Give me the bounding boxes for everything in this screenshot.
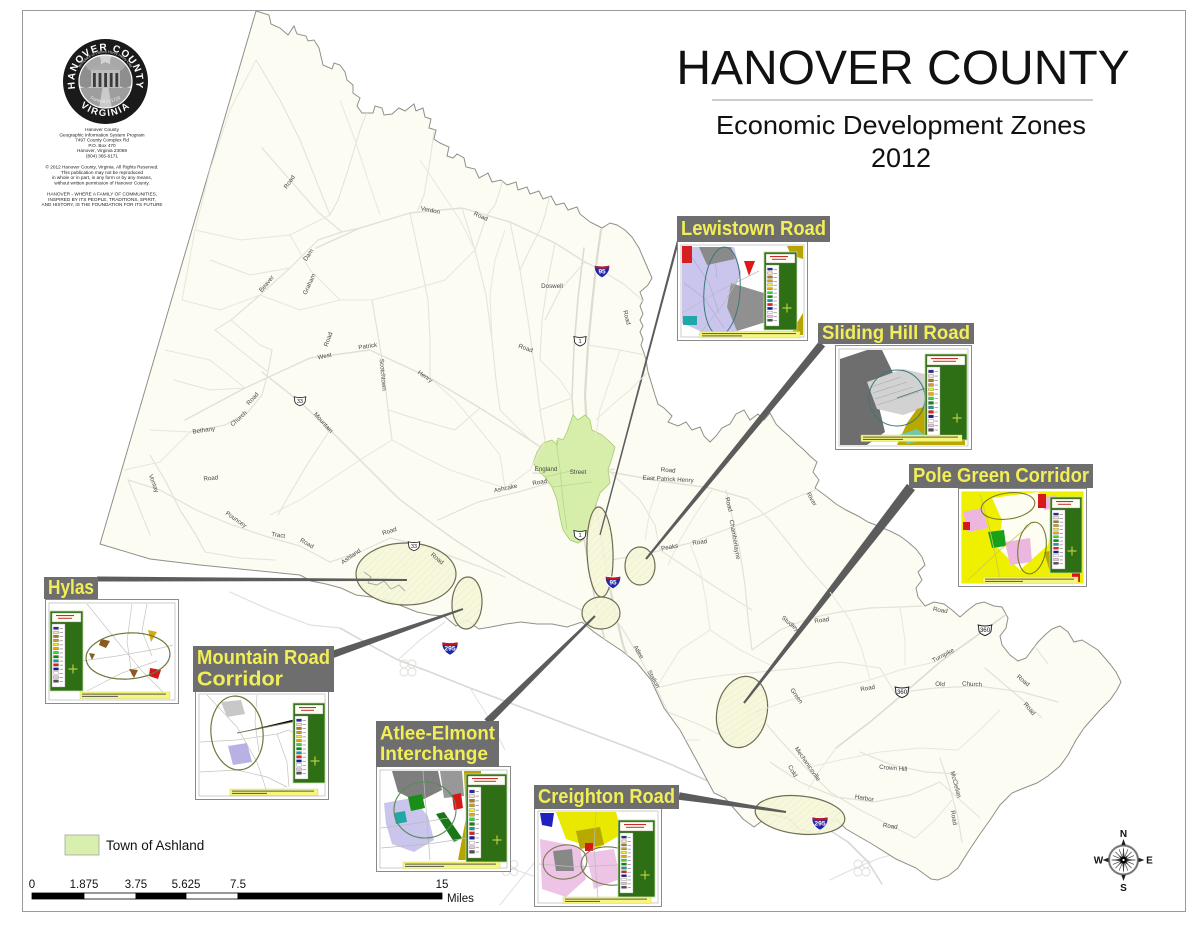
svg-text:Mountain Road: Mountain Road (197, 647, 330, 669)
svg-text:This publication may not be re: This publication may not be reproduced (61, 170, 143, 175)
svg-text:England: England (535, 466, 558, 473)
svg-text:Interchange: Interchange (380, 744, 488, 765)
svg-text:Corridor: Corridor (197, 669, 283, 691)
svg-text:295: 295 (444, 646, 455, 653)
svg-text:1: 1 (578, 533, 581, 539)
svg-text:© 2012 Hanover County, Virgini: © 2012 Hanover County, Virginia. All Rig… (46, 164, 159, 170)
svg-text:Economic Development Zones: Economic Development Zones (716, 110, 1086, 140)
svg-text:S: S (1120, 883, 1127, 894)
svg-text:Road: Road (203, 474, 219, 482)
svg-text:15: 15 (436, 879, 449, 891)
svg-text:95: 95 (609, 579, 617, 586)
svg-text:95: 95 (598, 268, 606, 275)
svg-text:7.5: 7.5 (230, 879, 246, 891)
svg-text:Pole Green Corridor: Pole Green Corridor (913, 465, 1089, 487)
svg-text:Geographic Information System: Geographic Information System Program (59, 132, 144, 137)
svg-text:INSPIRED BY ITS PEOPLE, TRADIT: INSPIRED BY ITS PEOPLE, TRADITIONS, SPIR… (48, 197, 156, 202)
svg-text:Street: Street (570, 469, 587, 476)
svg-text:360: 360 (980, 627, 991, 634)
svg-text:Town of Ashland: Town of Ashland (106, 838, 204, 853)
svg-text:Atlee-Elmont: Atlee-Elmont (380, 723, 496, 744)
svg-text:7497 County Complex Rd: 7497 County Complex Rd (75, 138, 129, 143)
svg-text:1.875: 1.875 (70, 879, 99, 891)
svg-text:Hylas: Hylas (48, 577, 94, 599)
svg-text:Church: Church (962, 680, 983, 688)
svg-text:Road: Road (660, 466, 676, 474)
svg-text:HANOVER COUNTY: HANOVER COUNTY (676, 42, 1129, 95)
svg-text:33: 33 (297, 399, 303, 405)
svg-text:N: N (1120, 829, 1127, 840)
svg-text:5.625: 5.625 (172, 879, 201, 891)
svg-text:Doswell: Doswell (541, 283, 563, 290)
svg-text:Lewistown Road: Lewistown Road (681, 218, 826, 240)
svg-text:360: 360 (897, 689, 908, 696)
svg-text:Sliding Hill Road: Sliding Hill Road (822, 323, 970, 344)
svg-text:33: 33 (411, 544, 417, 550)
svg-text:Hanover, Virginia 23069: Hanover, Virginia 23069 (77, 148, 127, 153)
svg-text:295: 295 (814, 821, 825, 828)
svg-text:0: 0 (29, 879, 35, 891)
svg-text:(804) 365-6171: (804) 365-6171 (86, 154, 118, 159)
svg-text:P.O. Box 470: P.O. Box 470 (88, 143, 116, 148)
svg-text:Miles: Miles (447, 893, 474, 905)
svg-text:E: E (1146, 856, 1153, 867)
svg-text:2012: 2012 (871, 143, 931, 173)
svg-text:Creighton Road: Creighton Road (538, 786, 675, 808)
svg-text:AND HISTORY, IS THE FOUNDATION: AND HISTORY, IS THE FOUNDATION FOR ITS F… (42, 202, 163, 207)
svg-text:1: 1 (578, 339, 581, 345)
svg-text:Hanover County: Hanover County (85, 127, 120, 132)
svg-text:W: W (1094, 856, 1104, 867)
svg-text:3.75: 3.75 (125, 879, 147, 891)
svg-text:in whole or in part, in any fo: in whole or in part, in any form or by a… (52, 175, 152, 180)
svg-text:HANOVER - WHERE A FAMILY OF CO: HANOVER - WHERE A FAMILY OF COMMUNITIES, (47, 192, 157, 197)
svg-text:without written permission of: without written permission of Hanover Co… (54, 180, 149, 185)
svg-text:Old: Old (935, 681, 946, 689)
